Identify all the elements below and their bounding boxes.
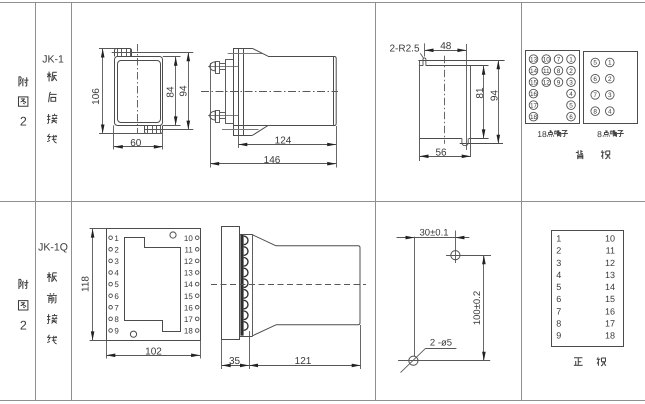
svg-text:146: 146 bbox=[264, 155, 281, 166]
svg-text:5: 5 bbox=[114, 280, 119, 289]
svg-text:1: 1 bbox=[608, 60, 612, 67]
svg-text:18: 18 bbox=[184, 327, 193, 336]
svg-text:3: 3 bbox=[556, 258, 561, 268]
svg-text:JK-1Q: JK-1Q bbox=[38, 241, 68, 253]
svg-text:15: 15 bbox=[530, 79, 538, 86]
svg-text:4: 4 bbox=[556, 270, 561, 280]
svg-text:48: 48 bbox=[440, 41, 452, 52]
svg-text:15: 15 bbox=[605, 294, 615, 304]
svg-text:2: 2 bbox=[114, 245, 119, 254]
svg-text:2: 2 bbox=[608, 76, 612, 83]
svg-text:94: 94 bbox=[490, 90, 501, 102]
svg-text:11: 11 bbox=[184, 245, 193, 254]
svg-text:4: 4 bbox=[114, 269, 119, 278]
svg-text:1: 1 bbox=[569, 56, 573, 63]
svg-text:6: 6 bbox=[593, 76, 597, 83]
svg-text:17: 17 bbox=[605, 318, 615, 328]
svg-text:5: 5 bbox=[593, 60, 597, 67]
svg-text:2 -ø5: 2 -ø5 bbox=[430, 338, 452, 349]
svg-text:10: 10 bbox=[605, 234, 615, 244]
svg-text:2: 2 bbox=[20, 319, 27, 333]
svg-text:60: 60 bbox=[130, 138, 142, 149]
svg-text:8: 8 bbox=[557, 68, 561, 75]
svg-text:81: 81 bbox=[475, 87, 486, 99]
svg-text:100±0.2: 100±0.2 bbox=[472, 291, 483, 325]
svg-text:10: 10 bbox=[184, 234, 193, 243]
svg-text:9: 9 bbox=[556, 331, 561, 341]
svg-text:4: 4 bbox=[569, 91, 573, 98]
svg-text:10: 10 bbox=[543, 56, 551, 63]
svg-text:5: 5 bbox=[569, 102, 573, 109]
svg-text:2: 2 bbox=[20, 115, 27, 129]
svg-text:1: 1 bbox=[556, 234, 561, 244]
svg-text:18: 18 bbox=[537, 129, 547, 139]
svg-text:121: 121 bbox=[295, 356, 312, 367]
svg-text:124: 124 bbox=[275, 136, 292, 147]
svg-text:16: 16 bbox=[530, 91, 538, 98]
svg-text:3: 3 bbox=[608, 92, 612, 99]
svg-text:118: 118 bbox=[80, 276, 91, 292]
svg-text:18: 18 bbox=[530, 114, 538, 121]
svg-text:15: 15 bbox=[184, 292, 193, 301]
svg-text:2: 2 bbox=[556, 246, 561, 256]
svg-text:14: 14 bbox=[605, 282, 615, 292]
svg-text:8: 8 bbox=[597, 129, 602, 139]
svg-text:17: 17 bbox=[530, 102, 538, 109]
svg-text:56: 56 bbox=[435, 147, 447, 158]
svg-text:13: 13 bbox=[184, 269, 193, 278]
svg-text:11: 11 bbox=[606, 246, 615, 256]
svg-text:14: 14 bbox=[530, 68, 538, 75]
svg-text:35: 35 bbox=[229, 356, 241, 367]
svg-text:6: 6 bbox=[569, 114, 573, 121]
svg-text:2: 2 bbox=[569, 68, 573, 75]
svg-text:30±0.1: 30±0.1 bbox=[420, 227, 449, 238]
svg-text:11: 11 bbox=[543, 68, 550, 75]
svg-text:16: 16 bbox=[605, 306, 615, 316]
svg-text:8: 8 bbox=[556, 318, 561, 328]
svg-text:17: 17 bbox=[184, 315, 193, 324]
svg-text:9: 9 bbox=[557, 79, 561, 86]
svg-text:5: 5 bbox=[556, 282, 561, 292]
svg-text:8: 8 bbox=[593, 108, 597, 115]
svg-text:7: 7 bbox=[593, 92, 597, 99]
svg-text:84: 84 bbox=[165, 86, 176, 98]
svg-text:3: 3 bbox=[569, 79, 573, 86]
svg-text:4: 4 bbox=[608, 108, 612, 115]
svg-text:12: 12 bbox=[605, 258, 615, 268]
svg-text:18: 18 bbox=[605, 331, 615, 341]
svg-text:13: 13 bbox=[530, 56, 538, 63]
svg-text:7: 7 bbox=[114, 303, 119, 312]
svg-text:12: 12 bbox=[543, 79, 551, 86]
svg-text:14: 14 bbox=[184, 280, 193, 289]
svg-text:7: 7 bbox=[556, 306, 561, 316]
svg-text:1: 1 bbox=[114, 234, 119, 243]
svg-text:JK-1: JK-1 bbox=[42, 54, 64, 66]
svg-text:94: 94 bbox=[178, 85, 189, 97]
svg-text:3: 3 bbox=[114, 257, 119, 266]
svg-text:8: 8 bbox=[114, 315, 119, 324]
svg-text:102: 102 bbox=[145, 347, 162, 358]
svg-text:12: 12 bbox=[184, 257, 193, 266]
svg-text:7: 7 bbox=[557, 56, 561, 63]
svg-text:6: 6 bbox=[114, 292, 119, 301]
svg-text:2-R2.5: 2-R2.5 bbox=[389, 43, 419, 54]
svg-text:13: 13 bbox=[605, 270, 615, 280]
svg-text:16: 16 bbox=[184, 303, 193, 312]
svg-text:106: 106 bbox=[91, 88, 102, 105]
svg-text:9: 9 bbox=[114, 327, 119, 336]
svg-text:6: 6 bbox=[556, 294, 561, 304]
